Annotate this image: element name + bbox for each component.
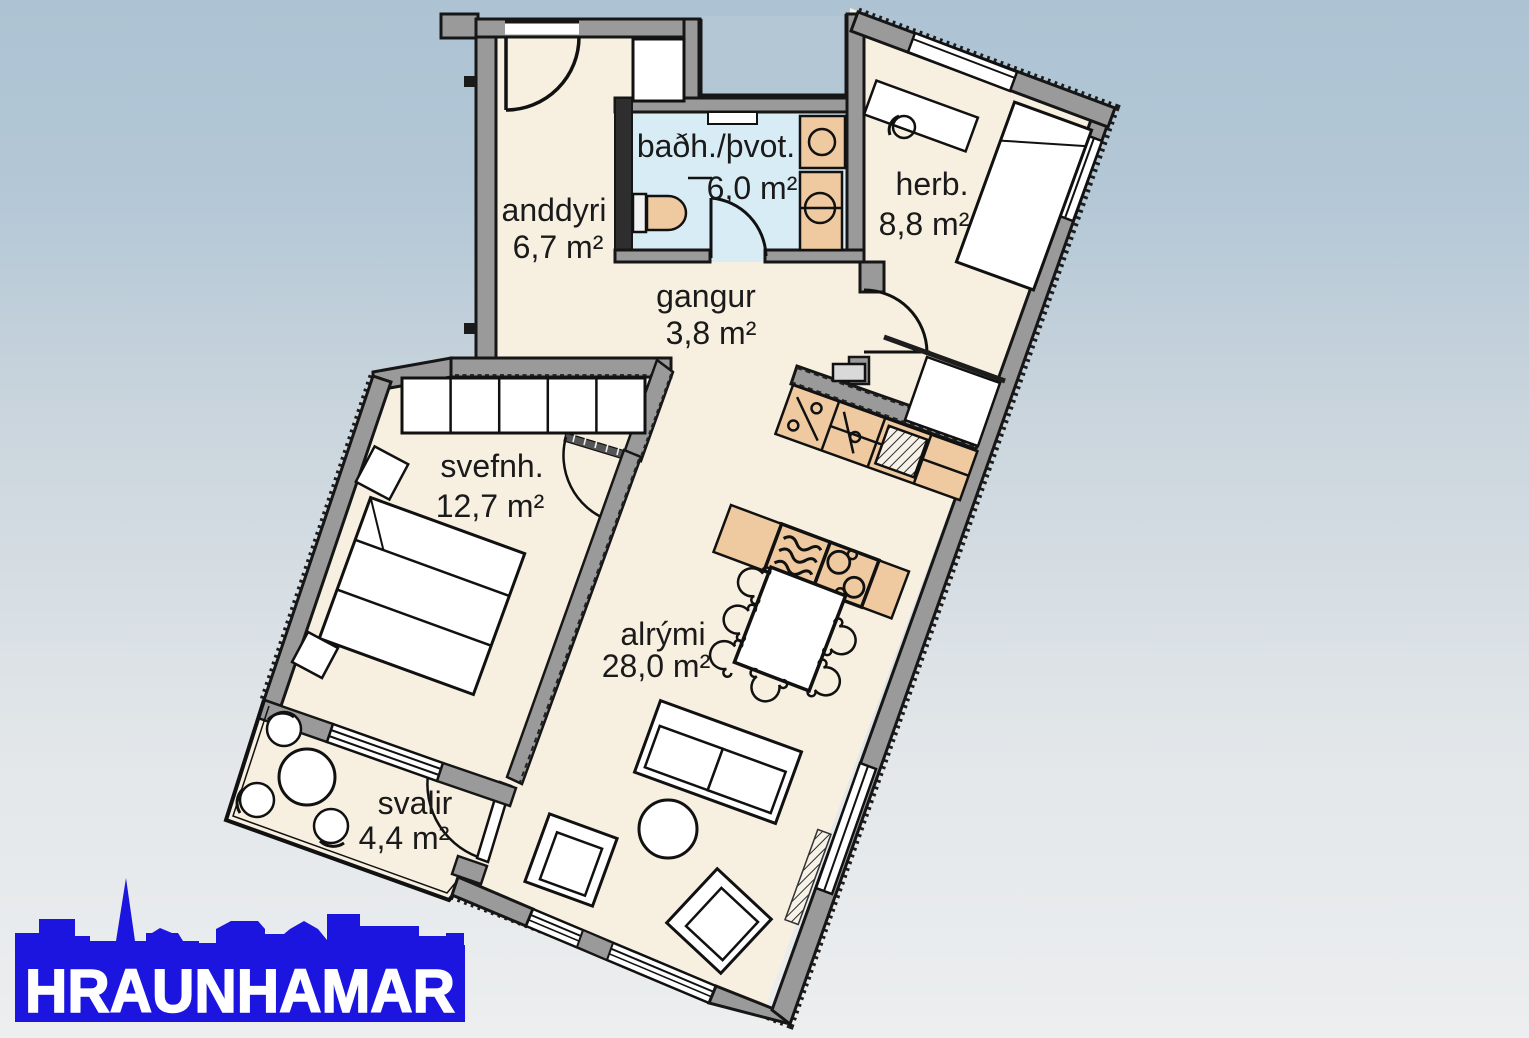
svg-text:28,0 m²: 28,0 m² — [602, 648, 711, 684]
svg-text:svalir: svalir — [378, 785, 453, 821]
svg-text:8,8 m²: 8,8 m² — [879, 206, 970, 242]
svg-text:HRAUNHAMAR: HRAUNHAMAR — [25, 957, 455, 1025]
svg-text:gangur: gangur — [656, 278, 756, 314]
svg-text:svefnh.: svefnh. — [440, 448, 543, 484]
svg-text:baðh./þvot.: baðh./þvot. — [637, 128, 795, 164]
svg-text:anddyri: anddyri — [502, 192, 607, 228]
svg-text:6,0 m²: 6,0 m² — [707, 170, 798, 206]
svg-text:6,7 m²: 6,7 m² — [513, 229, 604, 265]
svg-text:3,8 m²: 3,8 m² — [666, 315, 757, 351]
svg-text:alrými: alrými — [620, 616, 705, 652]
svg-text:12,7 m²: 12,7 m² — [436, 488, 545, 524]
svg-text:herb.: herb. — [896, 166, 969, 202]
svg-text:4,4 m²: 4,4 m² — [359, 820, 450, 856]
